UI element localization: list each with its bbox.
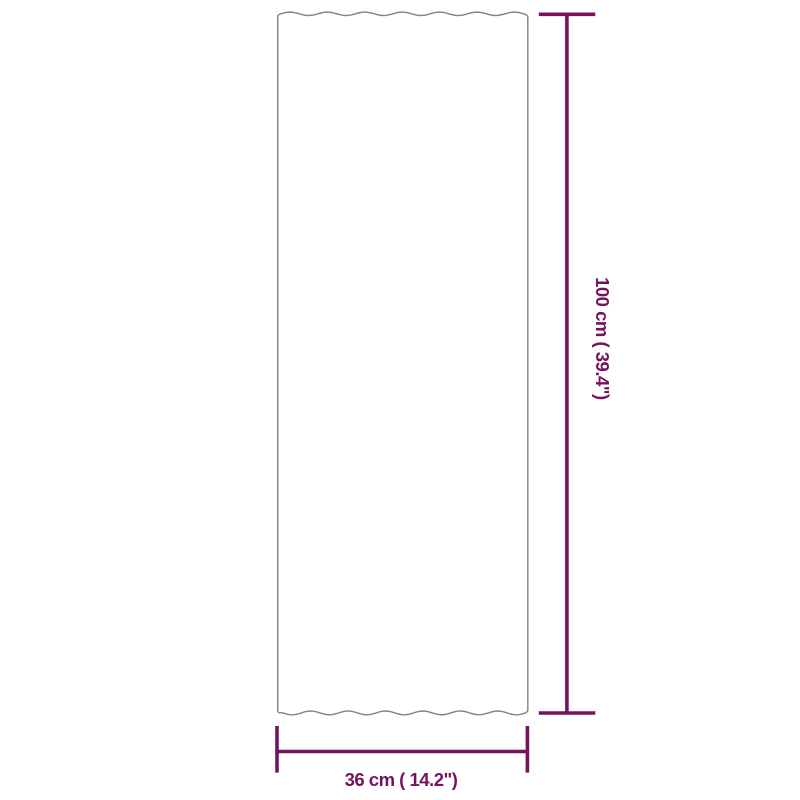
svg-text:36 cm ( 14.2"): 36 cm ( 14.2") [345, 769, 458, 790]
svg-text:100 cm ( 39.4"): 100 cm ( 39.4") [592, 277, 613, 400]
